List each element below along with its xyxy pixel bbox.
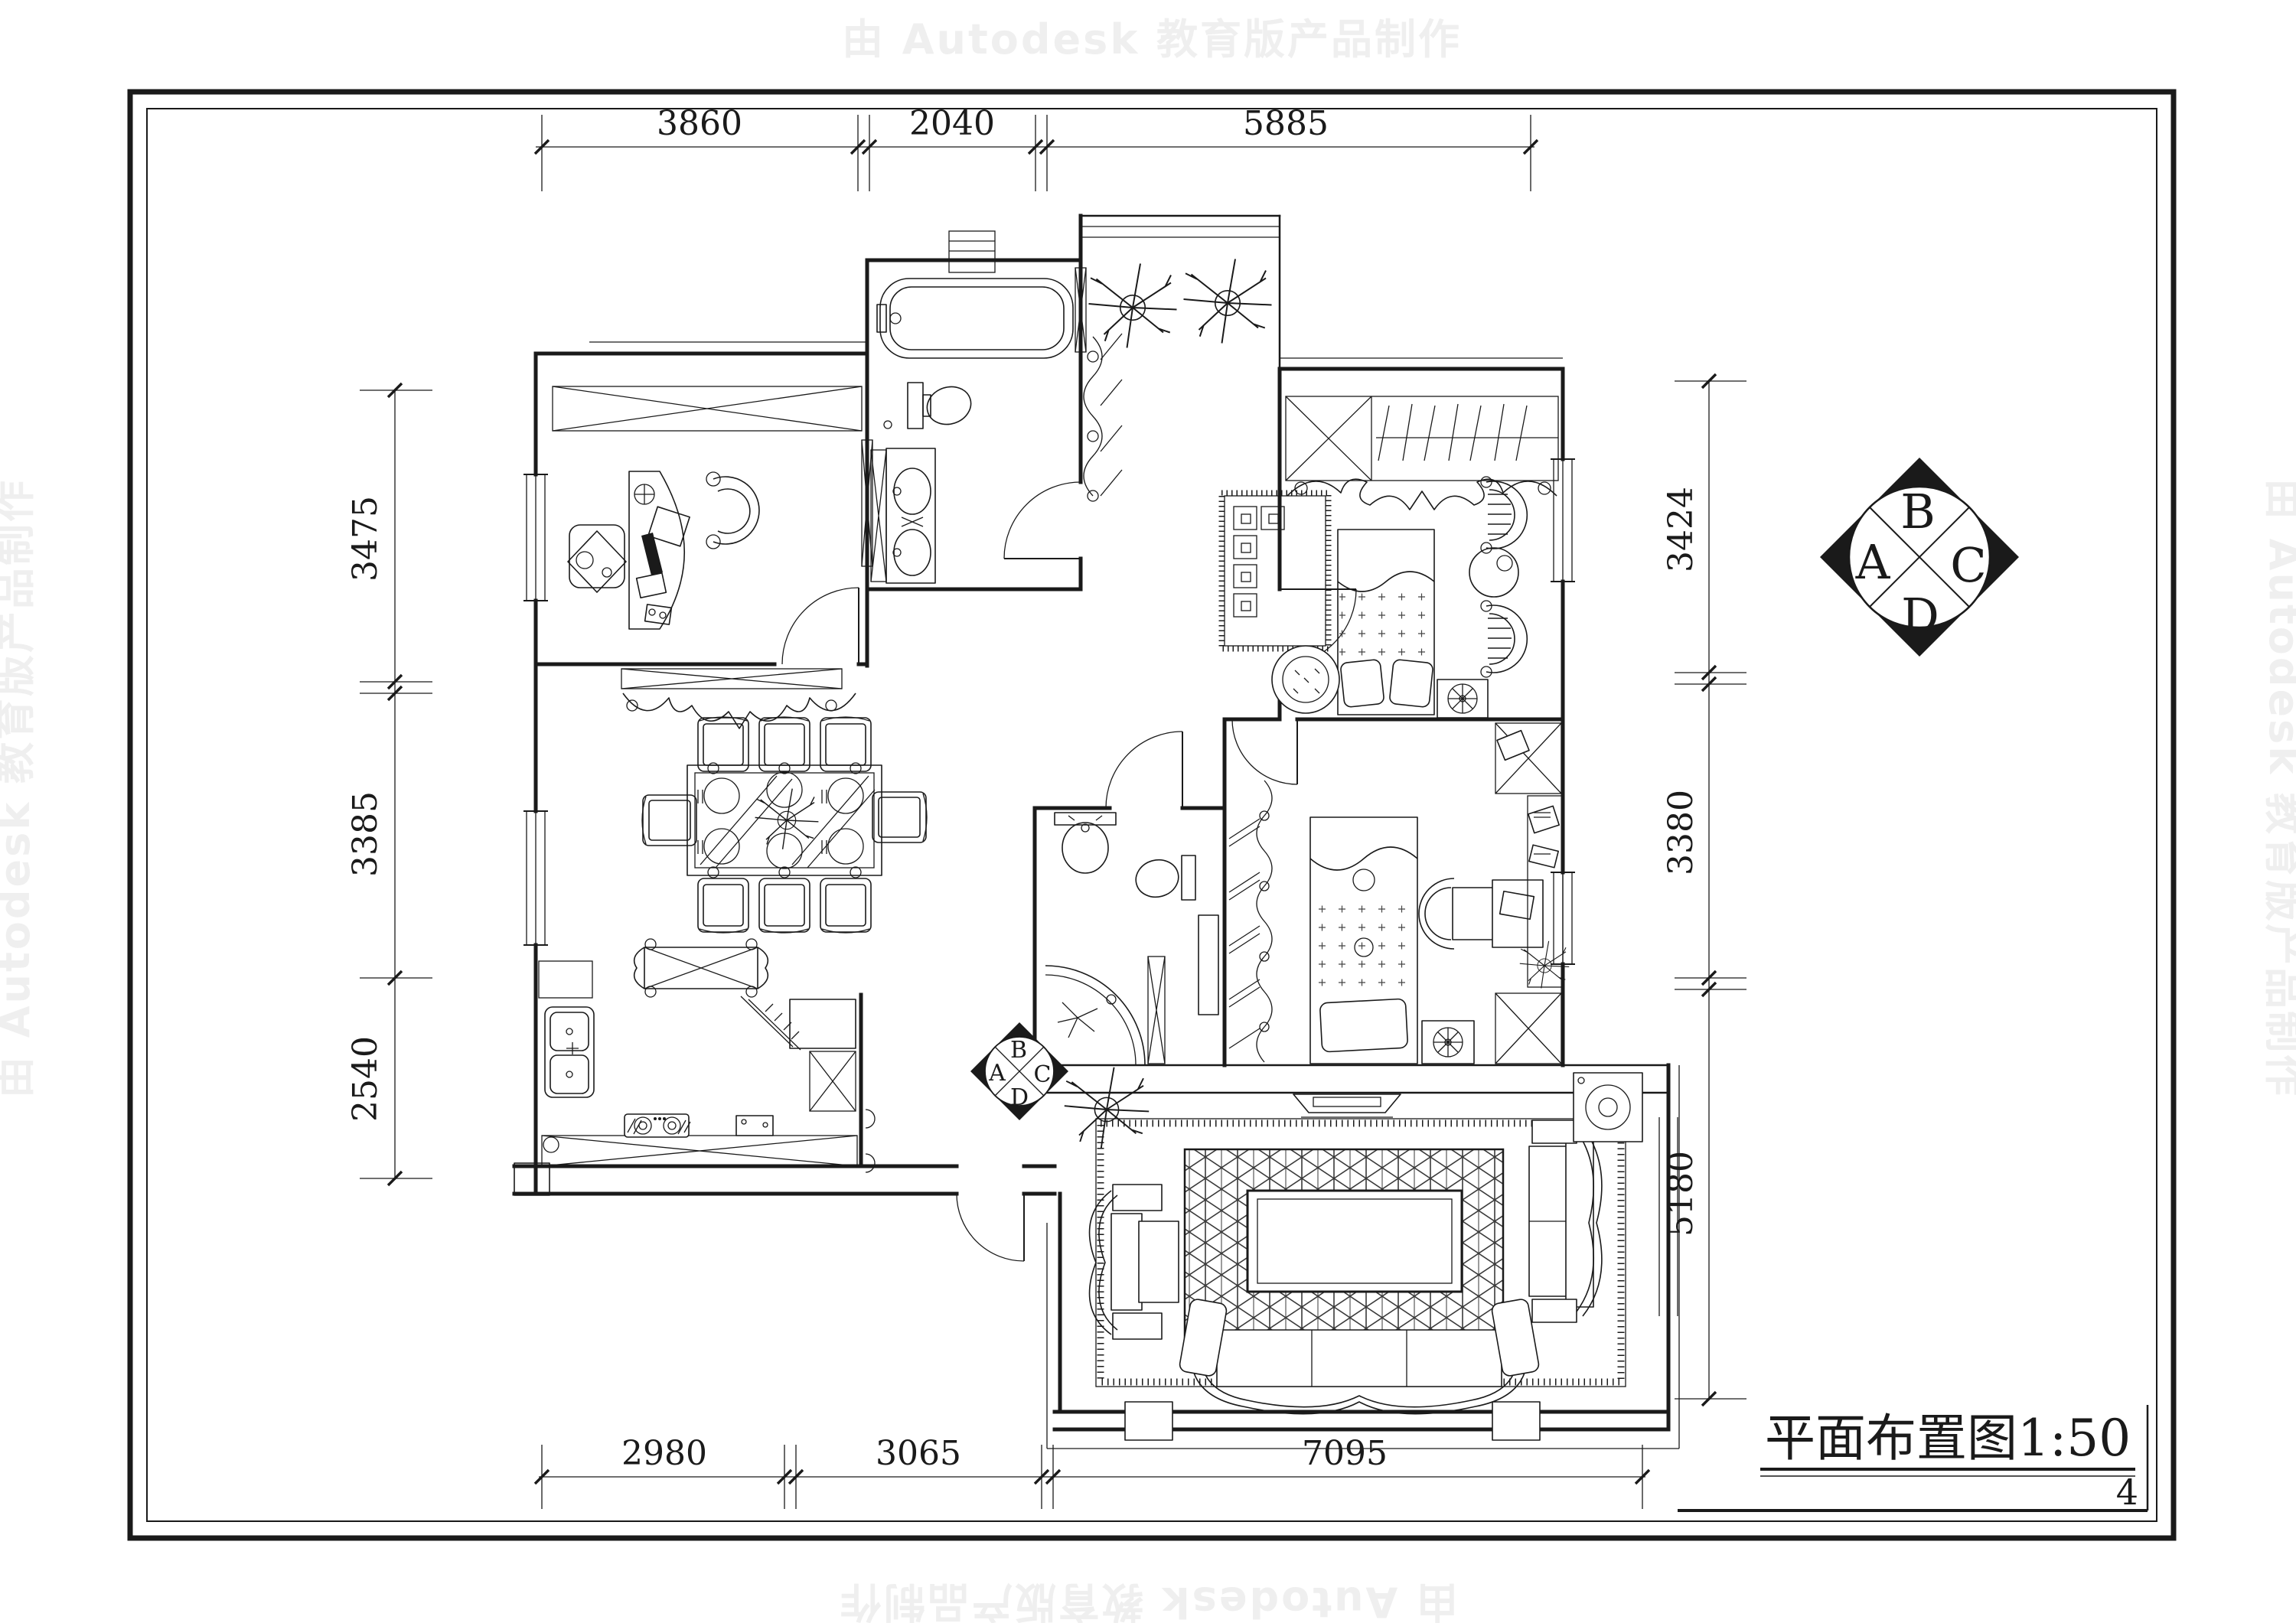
kitchen-sink: [545, 1007, 594, 1097]
desk-bedroom2: [1492, 880, 1543, 947]
page-number: 4: [2116, 1471, 2138, 1513]
kitchen-counter-corner: [539, 961, 592, 998]
title-block: 平面布置图1:50 4: [1678, 1405, 2148, 1513]
entry-balcony: [1089, 259, 1272, 348]
marker-letter-c: C: [1950, 537, 1986, 593]
window-dining: [523, 811, 548, 945]
dim-bottom-1: 2980: [621, 1434, 707, 1473]
dim-right-1: 3424: [1662, 487, 1701, 572]
office-chair: [706, 472, 759, 549]
room-small-bath: [1045, 813, 1218, 1065]
curtain-decor-hall: [1084, 334, 1122, 501]
desk-chair-bedroom2: [1419, 878, 1495, 949]
window-study: [523, 474, 548, 601]
small-appliance: [736, 1116, 773, 1136]
nightstand-master: [1437, 680, 1488, 718]
kitchen-base-counter: [542, 1136, 857, 1166]
toilet: [908, 381, 976, 430]
dimension-chain-left: 3475 3385 2540: [346, 383, 432, 1185]
drawing-title: 平面布置图1:50: [1765, 1409, 2131, 1468]
marker-letter-c: C: [1034, 1061, 1052, 1088]
rug-greek-key: [1221, 493, 1329, 649]
bed-master: [1338, 530, 1434, 715]
dimension-chain-bottom: 2980 3065 7095: [535, 1434, 1649, 1509]
marker-letter-d: D: [1901, 588, 1939, 644]
door-master-bath: [1004, 482, 1081, 559]
small-bath-sink: [1055, 813, 1116, 873]
watermark-right: 由 Autodesk 教育版产品制作: [2260, 478, 2296, 1098]
orientation-marker-large: A B C D: [1820, 458, 2019, 657]
cooktop: [625, 1114, 690, 1137]
round-side-table: [1469, 548, 1518, 597]
wall-valves: [866, 1110, 875, 1172]
marker-letter-a: A: [988, 1060, 1006, 1087]
dimension-chain-right: 3424 3380 5180: [1662, 374, 1746, 1406]
shower: [1045, 966, 1145, 1065]
door-entry: [957, 1194, 1024, 1261]
sideboard: [634, 939, 768, 997]
fridge: [741, 996, 856, 1050]
dim-top-2: 2040: [909, 104, 995, 143]
plant-icon: [1065, 1067, 1149, 1149]
drawing-sheet: 由 Autodesk 教育版产品制作 由 Autodesk 教育版产品制作 由 …: [0, 0, 2296, 1623]
dim-top-3: 5885: [1243, 104, 1329, 143]
marker-letter-d: D: [1010, 1084, 1029, 1111]
screen-curtain: [1229, 781, 1272, 1062]
plant-icon: [1089, 264, 1177, 348]
window-master-bedroom: [1551, 459, 1575, 582]
dining-table: [687, 763, 882, 878]
bathtub: [877, 279, 1073, 358]
vanity-double-sink: [871, 448, 935, 583]
orientation-marker-small: A B C D: [970, 1022, 1068, 1120]
dimension-chain-top: 3860 2040 5885: [535, 104, 1538, 191]
room-dining: [621, 669, 927, 997]
armchair-study: [568, 525, 626, 592]
dining-chair: [872, 792, 927, 842]
armchair-right: [1529, 1120, 1602, 1322]
door-study: [782, 588, 859, 664]
plant-icon: [1184, 259, 1272, 344]
corner-cabinet-top: [1495, 723, 1561, 794]
window-blinds-niche: [949, 231, 995, 272]
round-stool: [1272, 646, 1339, 713]
dining-chair: [698, 878, 748, 933]
armchair-left: [1090, 1185, 1179, 1339]
room-kitchen: [539, 961, 875, 1172]
room-living: [1065, 1067, 1642, 1414]
dim-left-2: 3385: [346, 791, 385, 877]
dining-chair: [820, 717, 871, 771]
drum-chair: [1481, 601, 1527, 677]
marker-letter-a: A: [1855, 534, 1891, 590]
marker-letter-b: B: [1010, 1037, 1027, 1064]
hatch-shower-wall: [1148, 957, 1165, 1064]
dim-bottom-3: 7095: [1302, 1434, 1388, 1473]
centerpiece-plant-icon: [755, 789, 819, 849]
windows: [523, 227, 1678, 1316]
corner-cabinet-bottom: [1495, 993, 1561, 1064]
nightstand-bedroom2: [1422, 1021, 1474, 1064]
room-bedroom2: [1229, 723, 1569, 1064]
dim-left-1: 3475: [346, 496, 385, 582]
bath-cabinet: [1199, 915, 1218, 1015]
small-bath-toilet: [1132, 855, 1195, 902]
wardrobe-study: [553, 386, 862, 431]
dining-chair: [642, 795, 696, 846]
drum-chair: [1481, 477, 1527, 553]
window-entry-balcony: [1081, 227, 1280, 237]
room-study: [553, 386, 862, 629]
door-small-bath: [1106, 732, 1182, 808]
dim-left-3: 2540: [346, 1036, 385, 1122]
floor-drain: [884, 421, 892, 429]
dining-chair: [759, 878, 810, 933]
dining-beam: [621, 669, 856, 728]
coffee-table: [1247, 1191, 1462, 1292]
dim-right-2: 3380: [1662, 790, 1701, 875]
kitchen-cabinet-x: [810, 1051, 856, 1111]
walls: [514, 216, 1679, 1449]
dim-top-1: 3860: [657, 104, 742, 143]
dining-chair: [820, 878, 871, 933]
door-bedroom2: [1232, 719, 1297, 784]
tv-stand: [1293, 1094, 1401, 1117]
watermark-bottom: 由 Autodesk 教育版产品制作: [838, 1578, 1458, 1623]
dim-bottom-2: 3065: [876, 1434, 961, 1473]
watermark-left: 由 Autodesk 教育版产品制作: [0, 478, 39, 1098]
room-master-bath: [871, 279, 1073, 583]
washing-machine: [1574, 1073, 1642, 1142]
desk: [629, 471, 690, 629]
room-master-bedroom: [1221, 396, 1558, 718]
watermark-top: 由 Autodesk 教育版产品制作: [842, 15, 1462, 64]
bed-bedroom2: [1310, 817, 1417, 1064]
marker-letter-b: B: [1900, 484, 1936, 539]
